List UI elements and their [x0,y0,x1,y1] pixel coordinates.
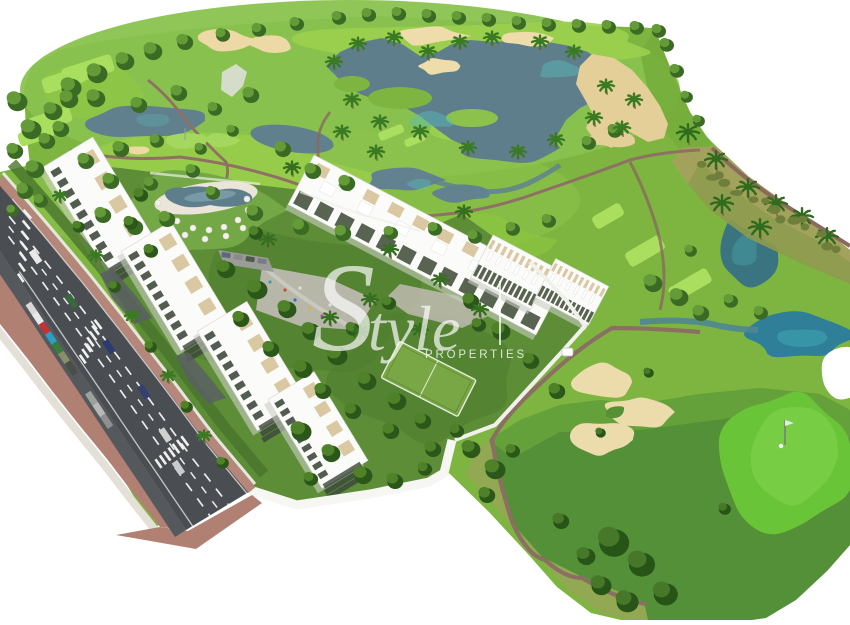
svg-text:PROPERTIES: PROPERTIES [425,349,527,361]
